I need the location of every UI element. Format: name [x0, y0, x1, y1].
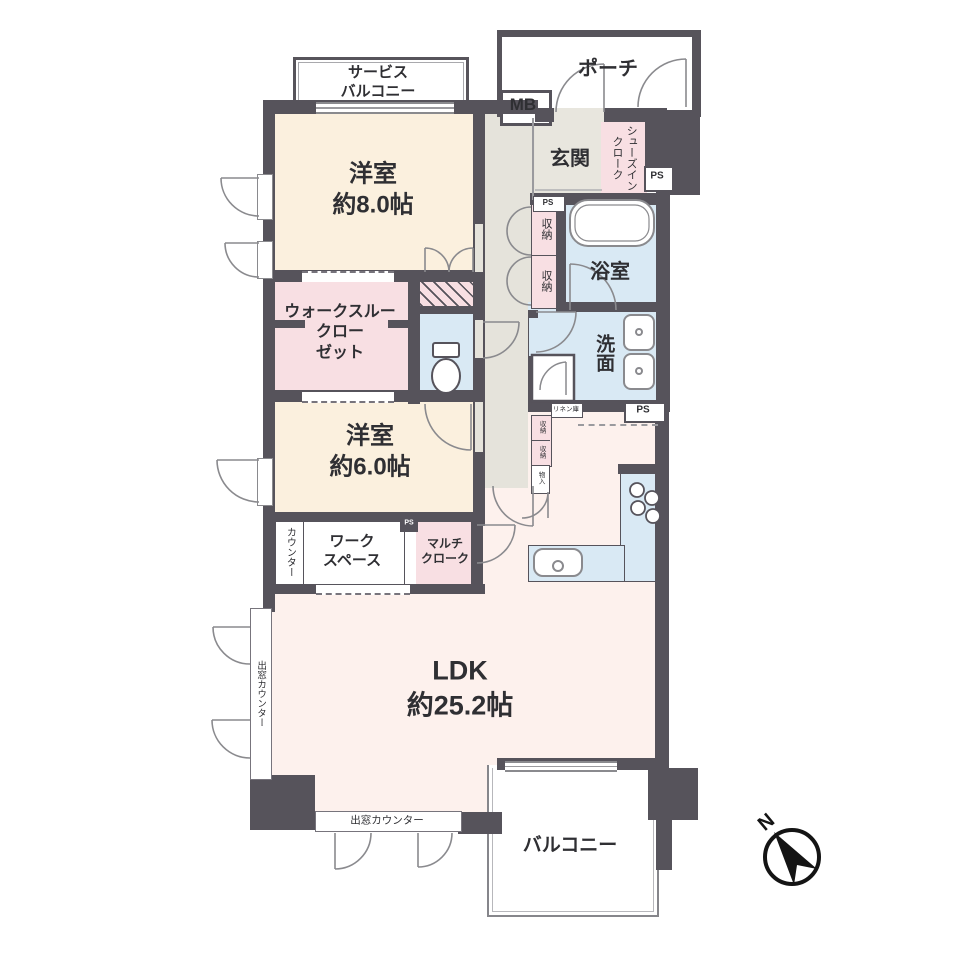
small-storage-divider — [531, 440, 550, 441]
label-north: N — [753, 809, 781, 838]
label-linen: リネン庫 — [553, 406, 579, 414]
label-western6: 洋室 約6.0帖 — [329, 421, 410, 482]
label-counter: カウンター — [283, 527, 296, 577]
label-walk-through-closet: ウォークスルー クロー ゼット — [284, 302, 396, 363]
label-ps: PS — [404, 520, 413, 529]
window — [257, 458, 273, 506]
wall — [648, 768, 698, 820]
label-porch: ポーチ — [578, 57, 638, 83]
label-ps: PS — [636, 405, 649, 418]
label-genkan: 玄関 — [550, 147, 590, 173]
label-service-balcony: サービス バルコニー — [341, 63, 416, 101]
wall — [250, 775, 315, 830]
label-shoes-in-cloak: シューズイン クローク — [610, 125, 638, 191]
label-storage-upper: 収納 — [539, 218, 553, 240]
label-bathroom: 浴室 — [590, 260, 630, 286]
wall — [471, 518, 483, 594]
wall — [655, 560, 669, 772]
label-workspace: ワーク スペース — [323, 532, 381, 570]
kitchen-counter-horizontal — [528, 545, 625, 582]
label-washroom: 洗面 — [591, 334, 615, 372]
label-western8: 洋室 約8.0帖 — [332, 159, 413, 220]
window — [316, 102, 454, 114]
wall — [556, 200, 566, 310]
wall — [656, 820, 672, 870]
label-ldk: LDK 約25.2帖 — [407, 653, 514, 722]
floor-plan: サービス バルコニー ポーチ MB 玄関 シューズイン クローク 洋室 約8.0… — [0, 0, 960, 960]
compass-icon — [765, 830, 819, 885]
wall — [458, 812, 502, 834]
bathroom-floor — [558, 193, 660, 314]
wall — [656, 190, 670, 412]
wall — [655, 404, 669, 564]
label-ps: PS — [543, 198, 554, 208]
label-ps: PS — [650, 171, 663, 184]
wall — [408, 272, 420, 404]
window — [505, 761, 617, 772]
closet-opening — [302, 271, 394, 282]
wall — [645, 118, 667, 168]
counter-divider — [303, 518, 304, 586]
wall — [413, 306, 477, 314]
label-bay-counter-left: 出窓カウンター — [254, 661, 266, 728]
label-mb: MB — [510, 94, 536, 116]
kitchen-hood-dashline — [578, 424, 658, 426]
genkan-step-line — [532, 118, 534, 200]
label-storage-small-1: 収納 — [537, 421, 545, 434]
wall — [263, 512, 485, 522]
wall — [556, 302, 668, 312]
label-storage-lower: 収納 — [539, 270, 553, 292]
label-bay-counter-bottom: 出窓カウンター — [350, 814, 424, 827]
wall — [618, 464, 658, 474]
label-multi-cloak: マルチ クローク — [421, 537, 469, 568]
label-balcony: バルコニー — [523, 834, 618, 858]
workspace-opening — [316, 585, 410, 595]
kitchen-counter-vertical — [620, 470, 658, 582]
closet-opening — [302, 392, 394, 403]
label-storage-small-2: 収納 — [537, 446, 545, 459]
window — [257, 174, 273, 220]
label-small-closet: 物入 — [536, 472, 544, 485]
window — [257, 241, 273, 279]
